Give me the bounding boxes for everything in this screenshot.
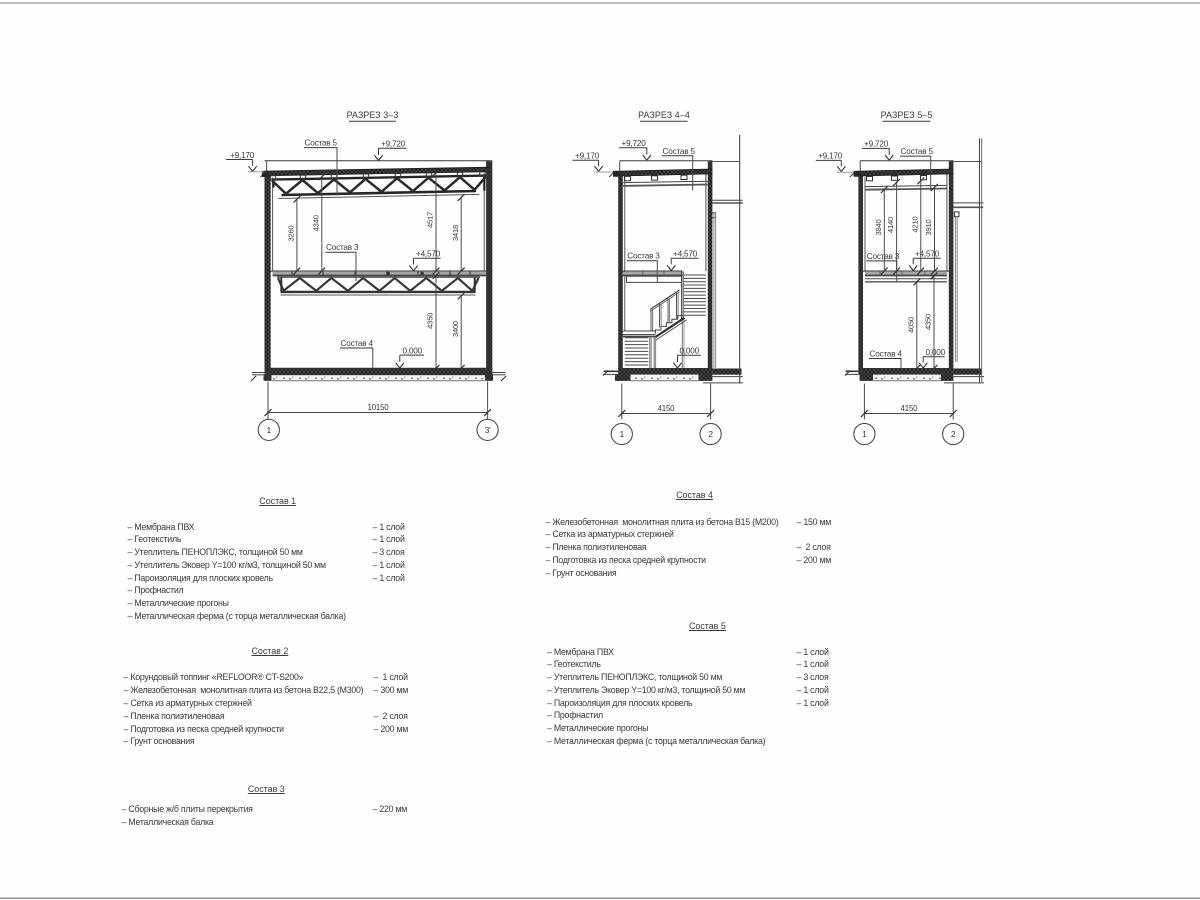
svg-text:+4,570: +4,570 xyxy=(673,249,698,258)
svg-text:2: 2 xyxy=(951,429,956,439)
svg-text:4150: 4150 xyxy=(901,404,919,413)
svg-text:+9,170: +9,170 xyxy=(818,151,843,160)
svg-text:Состав 4: Состав 4 xyxy=(341,339,374,348)
svg-text:РАЗРЕЗ 4–4: РАЗРЕЗ 4–4 xyxy=(638,110,690,120)
svg-text:3910: 3910 xyxy=(924,219,933,235)
svg-text:3840: 3840 xyxy=(874,219,883,235)
svg-text:3400: 3400 xyxy=(451,321,460,337)
svg-text:Состав 3: Состав 3 xyxy=(867,252,900,261)
svg-text:0,000: 0,000 xyxy=(926,348,946,357)
svg-text:0,000: 0,000 xyxy=(680,346,700,355)
svg-text:4150: 4150 xyxy=(658,404,676,413)
svg-text:4340: 4340 xyxy=(311,215,320,231)
svg-text:Состав 3: Состав 3 xyxy=(326,243,359,252)
svg-text:2: 2 xyxy=(708,429,713,439)
svg-text:Состав 3: Состав 3 xyxy=(627,252,660,261)
svg-text:+9,720: +9,720 xyxy=(864,139,889,148)
svg-text:4050: 4050 xyxy=(906,317,915,333)
svg-text:+9,720: +9,720 xyxy=(381,139,406,148)
svg-text:4210: 4210 xyxy=(910,216,919,232)
svg-text:0,000: 0,000 xyxy=(403,346,423,355)
svg-text:4517: 4517 xyxy=(426,212,435,228)
svg-text:1: 1 xyxy=(620,429,625,439)
svg-text:+9,170: +9,170 xyxy=(575,151,600,160)
svg-text:Состав 4: Состав 4 xyxy=(870,350,903,359)
svg-text:Состав 5: Состав 5 xyxy=(663,147,696,156)
svg-text:10150: 10150 xyxy=(368,403,390,412)
svg-text:3418: 3418 xyxy=(451,225,460,241)
svg-text:РАЗРЕЗ 5–5: РАЗРЕЗ 5–5 xyxy=(881,110,933,120)
svg-text:4350: 4350 xyxy=(924,314,933,330)
svg-text:+4,570: +4,570 xyxy=(915,249,940,258)
svg-text:1: 1 xyxy=(267,425,272,435)
svg-text:4140: 4140 xyxy=(886,217,895,233)
svg-text:1: 1 xyxy=(862,429,867,439)
svg-text:3': 3' xyxy=(485,425,492,435)
svg-text:+4,570: +4,570 xyxy=(416,249,441,258)
svg-text:Состав 5: Состав 5 xyxy=(305,139,338,148)
svg-text:Состав 5: Состав 5 xyxy=(901,147,934,156)
svg-text:РАЗРЕЗ 3–3: РАЗРЕЗ 3–3 xyxy=(347,110,399,120)
svg-text:3260: 3260 xyxy=(287,225,296,241)
svg-text:+9,170: +9,170 xyxy=(230,151,255,160)
svg-text:+9,720: +9,720 xyxy=(622,139,647,148)
svg-text:4350: 4350 xyxy=(426,313,435,329)
